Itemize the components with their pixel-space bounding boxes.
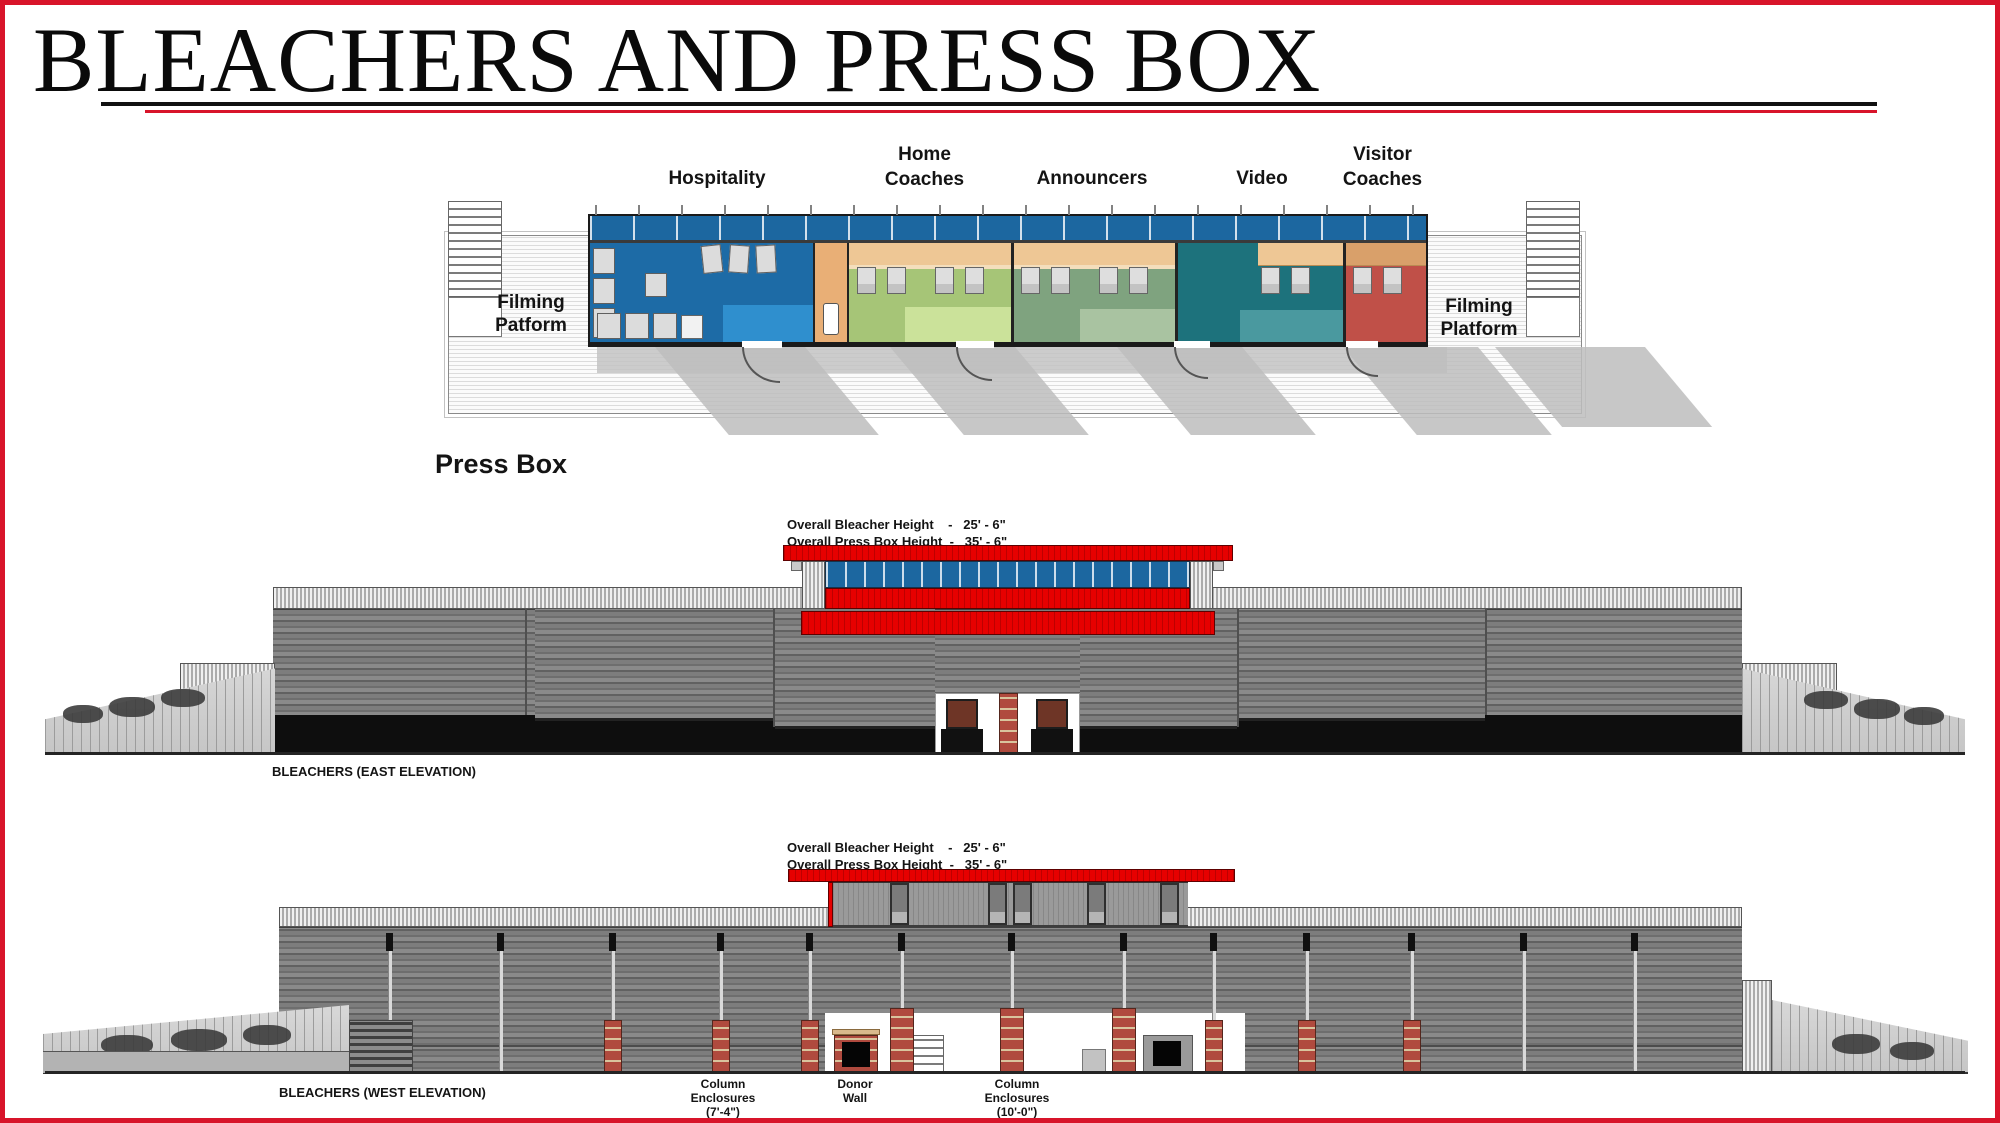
east-ramp-left <box>45 661 275 753</box>
pressbox-south-wall <box>588 342 1428 347</box>
east-wall-seam <box>773 609 775 727</box>
east-pressbox-red-band <box>825 588 1190 609</box>
light-pole <box>499 951 503 1072</box>
presentation-board: BLEACHERS AND PRESS BOX Hospitality Home… <box>0 0 2000 1123</box>
west-pressbox-door <box>1160 883 1179 925</box>
east-ground-line <box>45 752 1965 755</box>
west-pressbox-door <box>988 883 1007 925</box>
counter-seat <box>965 267 984 294</box>
west-elevation-label: BLEACHERS (WEST ELEVATION) <box>279 1085 486 1100</box>
west-dim-bleacher-height: Overall Bleacher Height - 25' - 6" <box>787 840 1006 855</box>
east-wall-seam <box>525 609 527 715</box>
callout-line: (7'-4") <box>668 1105 778 1119</box>
pressbox-window-ticks <box>595 205 1421 215</box>
page-title: BLEACHERS AND PRESS BOX <box>33 7 1453 113</box>
callout-line: (10'-0") <box>962 1105 1072 1119</box>
callout-line: Column <box>668 1077 778 1091</box>
plan-stairs-right <box>1526 201 1580 297</box>
counter-seat <box>1383 267 1402 294</box>
filming-platform-right-line2: Platform <box>1431 318 1527 341</box>
east-wall-panel-step <box>535 609 773 721</box>
counter-seat <box>1353 267 1372 294</box>
video-light-area <box>1240 310 1343 342</box>
announcers-light-area <box>1080 309 1175 342</box>
room-label-announcers: Announcers <box>1027 168 1157 190</box>
west-display-panel <box>1153 1041 1181 1066</box>
west-ramp-left-parapet <box>43 1051 349 1073</box>
counter-seat <box>1261 267 1280 294</box>
filming-platform-right-label: Filming Platform <box>1431 295 1527 341</box>
west-center-ledge <box>1082 1049 1106 1072</box>
light-pole-cap <box>1120 933 1127 951</box>
filming-platform-left-line1: Filming <box>483 291 579 314</box>
plan-stairs-left <box>448 201 502 297</box>
column-enclosure-7-4 <box>1403 1020 1421 1072</box>
room-label-hospitality: Hospitality <box>657 168 777 190</box>
column-enclosure-7-4 <box>604 1020 622 1072</box>
plan-furniture <box>593 248 615 274</box>
west-ramp-left <box>43 1005 349 1072</box>
light-pole-cap <box>386 933 393 951</box>
light-pole <box>1633 951 1637 1072</box>
column-enclosure-7-4 <box>712 1020 730 1072</box>
column-enclosure-10-0 <box>1112 1008 1136 1072</box>
ramp-shrub <box>1904 707 1944 725</box>
column-enclosure-7-4 <box>1205 1020 1223 1072</box>
east-pressbox-side-panel <box>802 561 825 609</box>
ramp-shrub <box>63 705 103 723</box>
partition-wall <box>1011 243 1014 342</box>
light-pole-cap <box>806 933 813 951</box>
partition-wall <box>1175 243 1178 342</box>
callout-line: Wall <box>800 1091 910 1105</box>
donor-wall-panel <box>842 1042 870 1067</box>
west-stair-tower-right <box>1742 980 1772 1072</box>
column-enclosure-10-0 <box>890 1008 914 1072</box>
west-center-stairs <box>910 1035 944 1072</box>
light-pole-cap <box>1008 933 1015 951</box>
ramp-shrub <box>1854 699 1900 719</box>
callout-column-enclosures-7-4: Column Enclosures (7'-4") <box>668 1077 778 1119</box>
east-dim-bleacher-height: Overall Bleacher Height - 25' - 6" <box>787 517 1006 532</box>
west-ramp-right <box>1772 1000 1968 1072</box>
title-underline-black <box>101 102 1877 106</box>
column-enclosure-7-4 <box>1298 1020 1316 1072</box>
east-wall-panel-step <box>1237 609 1485 721</box>
plan-table <box>645 273 667 297</box>
east-pressbox-roof-bracket <box>1213 561 1224 571</box>
plan-furniture <box>597 313 621 339</box>
east-entrance-door-base <box>941 729 983 753</box>
light-pole-cap <box>1631 933 1638 951</box>
east-pressbox-roof <box>783 545 1233 561</box>
counter-seat <box>857 267 876 294</box>
plan-furniture <box>755 244 776 273</box>
east-pressbox-windows <box>825 561 1190 588</box>
light-pole-cap <box>1408 933 1415 951</box>
corridor-header-visitor <box>1345 243 1426 266</box>
room-label-home-coaches: Home Coaches <box>877 142 972 192</box>
partition-wall <box>813 243 815 342</box>
ramp-shrub <box>171 1029 227 1051</box>
room-label-video: Video <box>1227 168 1297 190</box>
east-pressbox-side-panel <box>1190 561 1213 609</box>
plan-furniture <box>625 313 649 339</box>
west-ground-line <box>45 1071 1965 1074</box>
column-enclosure-7-4 <box>801 1020 819 1072</box>
callout-line: Enclosures <box>962 1091 1072 1105</box>
partition-wall <box>847 243 849 342</box>
west-pressbox-door <box>1013 883 1032 925</box>
light-pole-cap <box>1520 933 1527 951</box>
ramp-shrub <box>161 689 205 707</box>
light-pole-cap <box>717 933 724 951</box>
corridor-header-video <box>1258 243 1345 266</box>
west-pressbox-door <box>890 883 909 925</box>
east-wall-seam <box>1237 609 1239 727</box>
filming-platform-left-line2: Patform <box>483 314 579 337</box>
west-pressbox-roof <box>788 869 1235 882</box>
plan-furniture <box>653 313 677 339</box>
filming-platform-right-line1: Filming <box>1431 295 1527 318</box>
ramp-shrub <box>243 1025 291 1045</box>
light-pole-cap <box>609 933 616 951</box>
counter-seat <box>1129 267 1148 294</box>
counter-seat <box>1099 267 1118 294</box>
east-entrance-door-base <box>1031 729 1073 753</box>
west-stair-block-left <box>349 1020 413 1072</box>
home-coaches-light-area <box>905 307 1011 342</box>
ramp-shrub <box>1804 691 1848 709</box>
plan-furniture <box>728 244 750 273</box>
east-entrance-brick-pillar <box>999 693 1018 753</box>
east-elevation-label: BLEACHERS (EAST ELEVATION) <box>272 764 476 779</box>
east-ramp-right <box>1742 661 1965 753</box>
east-pressbox-roof-bracket <box>791 561 802 571</box>
west-pressbox-wall <box>833 882 1188 927</box>
light-pole-cap <box>1303 933 1310 951</box>
corridor-door <box>823 303 839 335</box>
plan-stairs-right-landing <box>1526 297 1580 337</box>
callout-line: Enclosures <box>668 1091 778 1105</box>
light-pole-cap <box>1210 933 1217 951</box>
east-pressbox-wide-red-band <box>801 611 1215 635</box>
ramp-shrub <box>1832 1034 1880 1054</box>
counter-seat <box>935 267 954 294</box>
filming-platform-left-label: Filming Patform <box>483 291 579 337</box>
ramp-shrub <box>1890 1042 1934 1060</box>
plan-caption: Press Box <box>435 449 567 480</box>
plan-furniture <box>593 278 615 304</box>
callout-line: Donor <box>800 1077 910 1091</box>
column-enclosure-10-0 <box>1000 1008 1024 1072</box>
partition-wall <box>1343 243 1346 342</box>
light-pole-cap <box>898 933 905 951</box>
east-entrance-door <box>1036 699 1068 729</box>
ramp-shrub <box>109 697 155 717</box>
plan-furniture <box>701 244 724 274</box>
callout-column-enclosures-10-0: Column Enclosures (10'-0") <box>962 1077 1072 1119</box>
callout-donor-wall: Donor Wall <box>800 1077 910 1105</box>
east-entrance-door <box>946 699 978 729</box>
west-pressbox-door <box>1087 883 1106 925</box>
light-pole <box>1522 951 1526 1072</box>
counter-seat <box>1051 267 1070 294</box>
room-label-visitor-coaches: Visitor Coaches <box>1335 142 1430 192</box>
callout-line: Column <box>962 1077 1072 1091</box>
title-underline-red <box>145 110 1877 113</box>
light-pole-cap <box>497 933 504 951</box>
east-wall-seam <box>1485 609 1487 715</box>
plan-furniture <box>681 315 703 339</box>
counter-seat <box>887 267 906 294</box>
pressbox-window-band <box>590 216 1426 240</box>
counter-seat <box>1291 267 1310 294</box>
hospitality-counter <box>723 305 813 342</box>
counter-seat <box>1021 267 1040 294</box>
